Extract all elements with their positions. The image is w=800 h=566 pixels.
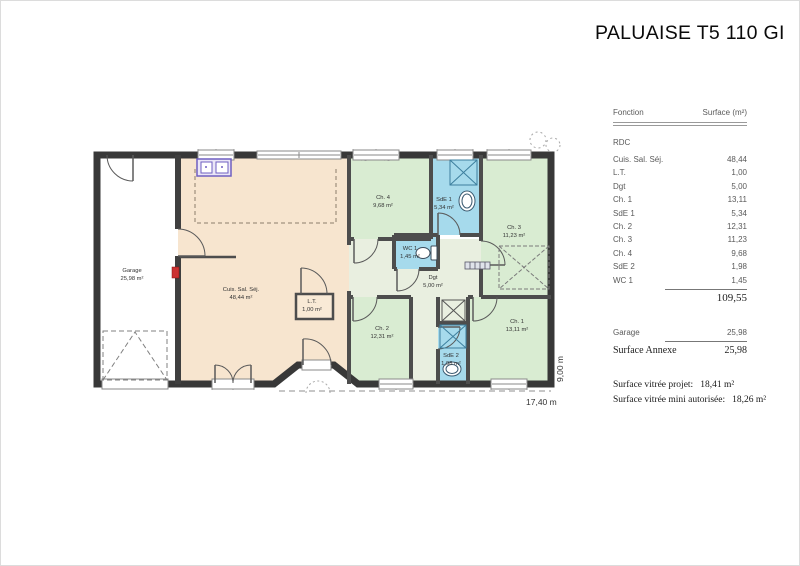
screenshot-root: Garage 25,98 m² Cuis. Sal. Séj. 48,44 m²…	[0, 0, 800, 566]
table-row: WC 11,45	[613, 276, 747, 289]
table-row: L.T.1,00	[613, 168, 747, 181]
col-function: Fonction	[613, 108, 644, 117]
label-ch1: Ch. 1	[510, 319, 524, 325]
window-ch1	[491, 379, 527, 389]
label-ch4: Ch. 4	[376, 195, 391, 201]
garage-row: Garage 25,98	[613, 328, 747, 341]
table-row: Ch. 212,31	[613, 222, 747, 235]
sink-icon	[459, 191, 475, 211]
label-living: Cuis. Sal. Séj.	[223, 287, 260, 293]
room-ch4	[349, 155, 431, 239]
svg-text:13,11 m²: 13,11 m²	[506, 327, 529, 333]
room-ch1	[468, 297, 551, 384]
svg-text:11,23 m²: 11,23 m²	[503, 233, 526, 239]
annexe-rule	[665, 341, 747, 342]
svg-text:1,45 m²: 1,45 m²	[400, 254, 420, 260]
bush	[546, 138, 560, 152]
glazing-min-line: Surface vitrée mini autorisée:18,26 m²	[613, 393, 766, 408]
page-title: PALUAISE T5 110 GI	[595, 22, 785, 45]
svg-text:5,00 m²: 5,00 m²	[423, 283, 443, 289]
header-rule	[613, 122, 747, 126]
kitchen-sink-icon	[197, 159, 231, 176]
window-ch2	[379, 379, 413, 389]
label-lt: L.T.	[307, 299, 317, 305]
dim-height-label: 9,00 m	[555, 356, 565, 382]
label-wc1: WC 1	[403, 246, 418, 252]
total-rule	[665, 289, 747, 290]
label-dgt: Dgt	[428, 275, 437, 281]
total-surface: 109,55	[613, 292, 747, 304]
table-header: Fonction Surface (m²)	[613, 108, 747, 122]
section-rdc: RDC	[613, 138, 747, 148]
svg-text:48,44 m²: 48,44 m²	[230, 295, 253, 301]
svg-text:12,31 m²: 12,31 m²	[371, 334, 394, 340]
electrical-panel-icon	[172, 267, 179, 278]
annexe-row: Surface Annexe 25,98	[613, 345, 747, 356]
window-ch3	[487, 150, 531, 160]
table-row: Ch. 311,23	[613, 235, 747, 248]
radiator-icon	[465, 262, 490, 269]
table-rows: Cuis. Sal. Séj.48,44 L.T.1,00 Dgt5,00 Ch…	[613, 155, 747, 289]
label-garage: Garage	[122, 268, 141, 274]
svg-text:5,34 m²: 5,34 m²	[434, 205, 454, 211]
col-surface: Surface (m²)	[703, 108, 747, 117]
dim-width-label: 17,40 m	[526, 397, 557, 407]
window-ch4	[353, 150, 399, 160]
svg-text:25,98 m²: 25,98 m²	[121, 276, 144, 282]
label-sde1: SdE 1	[436, 197, 452, 203]
room-living	[178, 155, 349, 384]
table-row: SdE 21,98	[613, 262, 747, 275]
room-ch2	[349, 297, 411, 384]
room-hall-leg	[411, 297, 438, 384]
label-ch2: Ch. 2	[375, 326, 389, 332]
label-sde2: SdE 2	[443, 353, 459, 359]
table-row: Ch. 49,68	[613, 249, 747, 262]
svg-text:1,98 m²: 1,98 m²	[441, 361, 461, 367]
glazing-project-line: Surface vitrée projet:18,41 m²	[613, 378, 766, 393]
label-ch3: Ch. 3	[507, 225, 521, 231]
table-row: SdE 15,34	[613, 209, 747, 222]
window-living-sliding	[257, 151, 341, 159]
table-row: Cuis. Sal. Séj.48,44	[613, 155, 747, 168]
glazing-notes: Surface vitrée projet:18,41 m² Surface v…	[613, 378, 766, 408]
table-row: Ch. 113,11	[613, 195, 747, 208]
svg-text:1,00 m²: 1,00 m²	[302, 307, 322, 313]
bush	[530, 132, 546, 148]
table-row: Dgt5,00	[613, 182, 747, 195]
window-sde1	[437, 150, 473, 160]
entry-door-opening	[302, 360, 331, 370]
svg-text:9,68 m²: 9,68 m²	[373, 203, 393, 209]
surface-table: Fonction Surface (m²) RDC Cuis. Sal. Séj…	[613, 108, 747, 356]
